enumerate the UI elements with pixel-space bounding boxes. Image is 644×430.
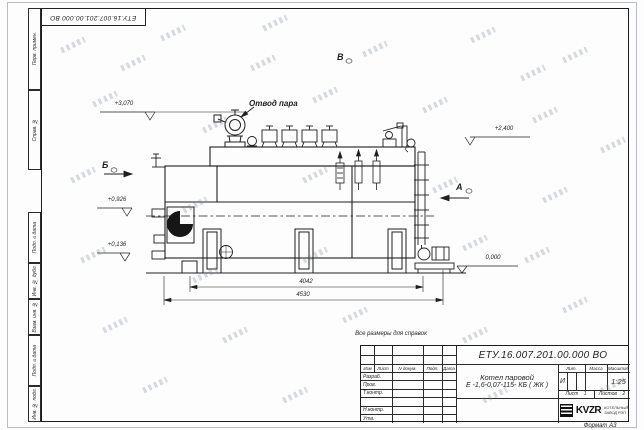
burner <box>167 207 194 243</box>
dimension-4530: 4530 <box>278 292 328 298</box>
sheets-value: 2 <box>622 391 625 397</box>
row-label-t-kontr: Т.контр. <box>363 390 392 396</box>
margin-label: Справ. № <box>32 118 38 141</box>
col-header-podp: Подп. <box>423 364 442 372</box>
margin-box-inv-podl: Инв. № подл. <box>28 386 41 422</box>
grid-line <box>423 346 424 423</box>
water-gauges <box>336 150 380 190</box>
view-letter: А <box>456 182 463 192</box>
row-label-prov: Пров. <box>363 382 392 388</box>
grid-line <box>558 372 630 373</box>
downcomer-and-pump <box>414 152 454 273</box>
lit-header: Лит. <box>558 364 585 372</box>
elevation-mark-0926: +0,926 <box>95 197 139 203</box>
safety-valve <box>383 123 415 152</box>
elevation-mark-2400: +2,400 <box>478 126 530 132</box>
steam-outlet-valve <box>214 110 245 147</box>
product-name-line1: Котел паровой <box>480 373 534 382</box>
sheets-total-cell: Листов 2 <box>594 390 630 398</box>
grid-line <box>576 372 577 390</box>
grid-line <box>361 406 456 407</box>
drain-fitting <box>219 245 233 259</box>
sheet-value: 1 <box>584 391 587 397</box>
row-label-n-kontr: Н.контр. <box>363 407 392 413</box>
drum-fittings <box>262 126 337 147</box>
margin-label: Перв. примен. <box>32 32 38 65</box>
margin-label: Инв. № подл. <box>32 388 38 420</box>
grid-line <box>456 398 630 399</box>
steam-outlet-label: Отвод пара <box>249 99 298 108</box>
margin-box-podp-data-1: Подп. и дата <box>28 212 41 263</box>
row-label-razrab: Разраб. <box>363 374 392 380</box>
logo-mark-icon <box>560 404 573 417</box>
flipped-designation-text: ЕТУ.16.007.201.00.000 ВО <box>50 14 136 21</box>
grid-line <box>567 372 568 390</box>
product-name-cell: Котел паровой Е -1,6-0,07-115- КБ ( ЖК ) <box>456 364 558 398</box>
view-label-b: Б <box>102 160 108 170</box>
sheets-label: Листов <box>599 391 617 397</box>
margin-box-inv-dubl: Инв. № дубл. <box>28 263 41 299</box>
margin-label: Подп. и дата <box>32 345 38 376</box>
company-name-line1: КОТЕЛЬНЫЙ <box>604 406 628 410</box>
margin-label: Инв. № дубл. <box>32 265 38 296</box>
col-header-list: Лист <box>374 364 392 372</box>
row-label-utv: Утв. <box>363 416 392 422</box>
massa-header: Масса <box>585 364 607 372</box>
lit-value: И <box>558 372 567 390</box>
masshtab-header: Масштаб <box>607 364 630 372</box>
margin-box-perv-primen: Перв. примен. <box>28 8 41 90</box>
vent-fitting <box>247 137 257 147</box>
product-name-line2: Е -1,6-0,07-115- КБ ( ЖК ) <box>466 382 548 389</box>
grid-line <box>361 397 456 398</box>
col-header-data: Дата <box>442 364 456 372</box>
margin-box-sprav-no: Справ. № <box>28 90 41 170</box>
grid-line <box>361 372 456 373</box>
view-letter: Б <box>102 160 108 170</box>
title-designation: ЕТУ.16.007.201.00.000 ВО <box>456 346 630 364</box>
sheet-number-cell: Лист 1 <box>558 390 594 398</box>
grid-line <box>361 380 456 381</box>
view-label-a: А <box>456 182 463 192</box>
col-header-doc: N докум. <box>392 364 423 372</box>
front-nozzles <box>151 154 165 259</box>
grid-line <box>374 346 375 372</box>
flipped-designation-box: ЕТУ.16.007.201.00.000 ВО <box>41 8 146 26</box>
elevation-mark-3070: +3,070 <box>98 101 150 107</box>
view-label-v: В <box>337 52 344 62</box>
drawing-sheet: Перв. примен. Справ. № Подп. и дата Инв.… <box>0 0 644 430</box>
view-letter: В <box>337 52 344 62</box>
scale-value: 1:25 <box>607 372 630 390</box>
reference-note: Все размеры для справок <box>352 331 430 337</box>
sheet-label: Лист <box>565 391 578 397</box>
boiler-supports <box>182 229 406 273</box>
grid-line <box>361 364 630 365</box>
dimension-lines <box>164 270 443 305</box>
massa-value <box>585 372 607 390</box>
margin-box-podp-data-2: Подп. и дата <box>28 335 41 386</box>
company-logo: KVZR КОТЕЛЬНЫЙ ЗАВОД РЭП <box>558 398 630 423</box>
grid-line <box>558 390 630 391</box>
dimension-4042: 4042 <box>281 279 331 285</box>
logo-abbr: KVZR <box>576 405 601 416</box>
grid-line <box>607 364 608 390</box>
margin-label: Взам. инв. № <box>32 301 38 333</box>
elevation-mark-0136: +0,136 <box>95 242 139 248</box>
grid-line <box>361 355 456 356</box>
grid-line <box>442 346 443 423</box>
grid-line <box>585 364 586 390</box>
grid-line <box>361 414 456 415</box>
title-block: ЕТУ.16.007.201.00.000 ВО Изм Лист N доку… <box>360 345 629 422</box>
grid-line <box>594 390 595 398</box>
grid-line <box>456 346 457 423</box>
grid-line <box>361 389 456 390</box>
col-header-izm: Изм <box>361 364 374 372</box>
format-label: Формат А3 <box>570 423 630 429</box>
margin-box-vzam-inv: Взам. инв. № <box>28 299 41 335</box>
elevation-mark-0000: 0,000 <box>470 255 516 261</box>
company-name: КОТЕЛЬНЫЙ ЗАВОД РЭП <box>604 406 628 415</box>
margin-label: Подп. и дата <box>32 222 38 253</box>
grid-line <box>392 346 393 423</box>
company-name-line2: ЗАВОД РЭП <box>604 411 628 415</box>
